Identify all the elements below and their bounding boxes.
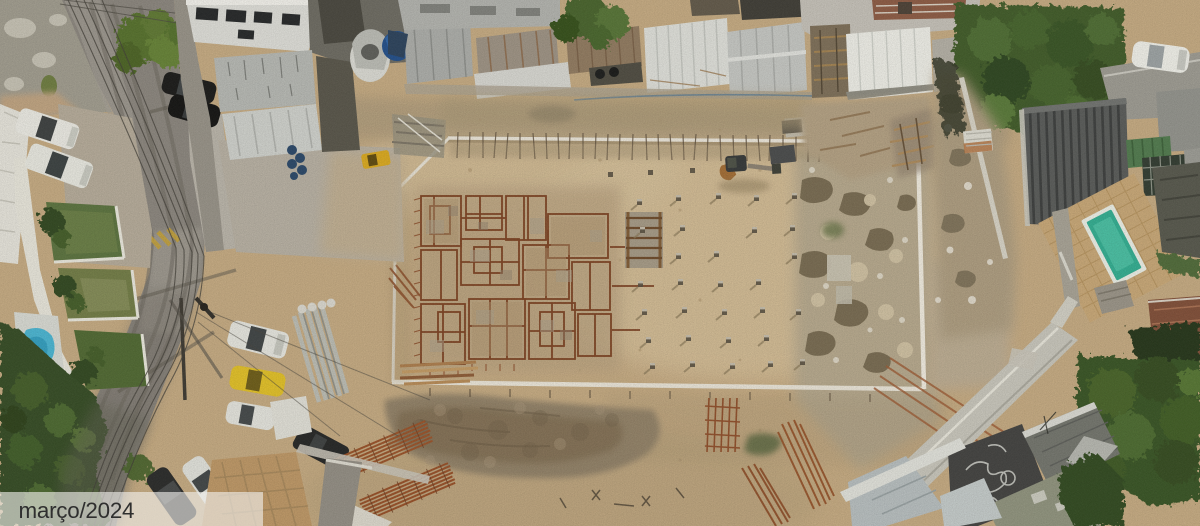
svg-text:março/2024: março/2024 — [19, 498, 135, 523]
